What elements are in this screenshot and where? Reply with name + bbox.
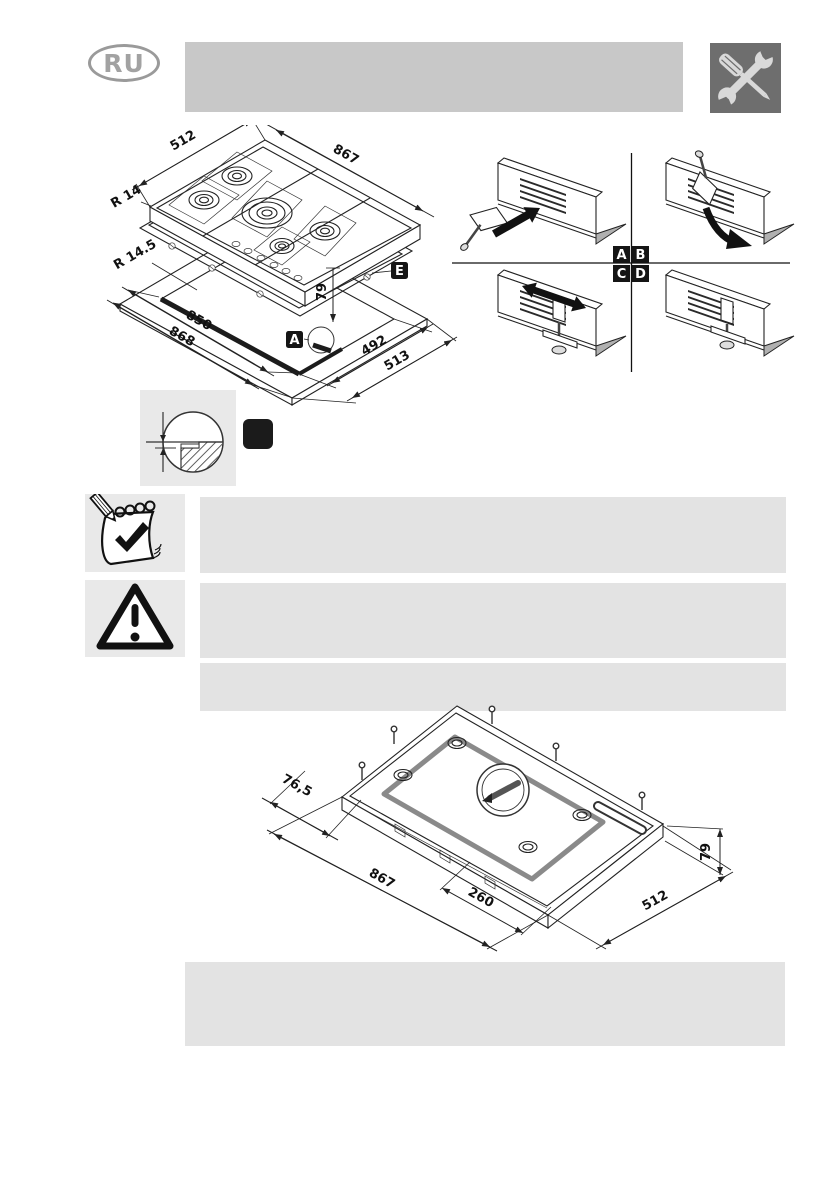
label-step-a: A — [616, 248, 626, 263]
dim-867-bottom: 867 — [366, 866, 397, 892]
step-A-illustration — [450, 158, 626, 253]
bottom-text-block — [185, 962, 785, 1046]
step-B-illustration — [666, 150, 794, 249]
label-step-d: D — [635, 267, 646, 282]
color-chip — [243, 419, 273, 449]
svg-text:A: A — [289, 333, 299, 348]
dim-867: 867 — [330, 142, 361, 168]
dim-r14: R 14 — [108, 182, 144, 211]
note-text-block — [200, 497, 786, 573]
centre-fitting — [477, 764, 529, 816]
dim-79-bottom: 79 — [699, 843, 714, 861]
warning-icon-block — [85, 580, 185, 657]
manual-page: RU — [0, 0, 840, 1190]
step-D-illustration — [666, 270, 794, 356]
label-step-c: C — [617, 267, 627, 282]
hob-installation-diagram: 512 867 R 14 R 14.5 850 868 492 — [95, 125, 465, 415]
language-badge: RU — [88, 44, 160, 82]
seal-detail-block — [140, 390, 236, 486]
notepad-pencil-icon — [85, 494, 185, 572]
warning-triangle-icon — [85, 580, 185, 657]
wrench-screwdriver-icon — [710, 43, 781, 113]
installation-tools-icon — [710, 43, 781, 113]
dim-76-5: 76,5 — [279, 772, 314, 801]
note-icon-block — [85, 494, 185, 572]
header-title-bar — [185, 42, 683, 112]
dim-79-main: 79 — [315, 283, 330, 301]
dim-r14-5: R 14.5 — [111, 237, 159, 273]
dim-512: 512 — [168, 128, 199, 155]
hob-underside-diagram: 76,5 867 260 512 79 — [255, 690, 745, 965]
label-step-b: B — [636, 248, 646, 263]
step-C-illustration — [498, 270, 626, 356]
svg-text:E: E — [395, 264, 404, 279]
warning-text-block — [200, 583, 786, 658]
worktop-section-detail — [140, 390, 236, 486]
bracket-mounting-steps: A B C D — [450, 140, 795, 380]
